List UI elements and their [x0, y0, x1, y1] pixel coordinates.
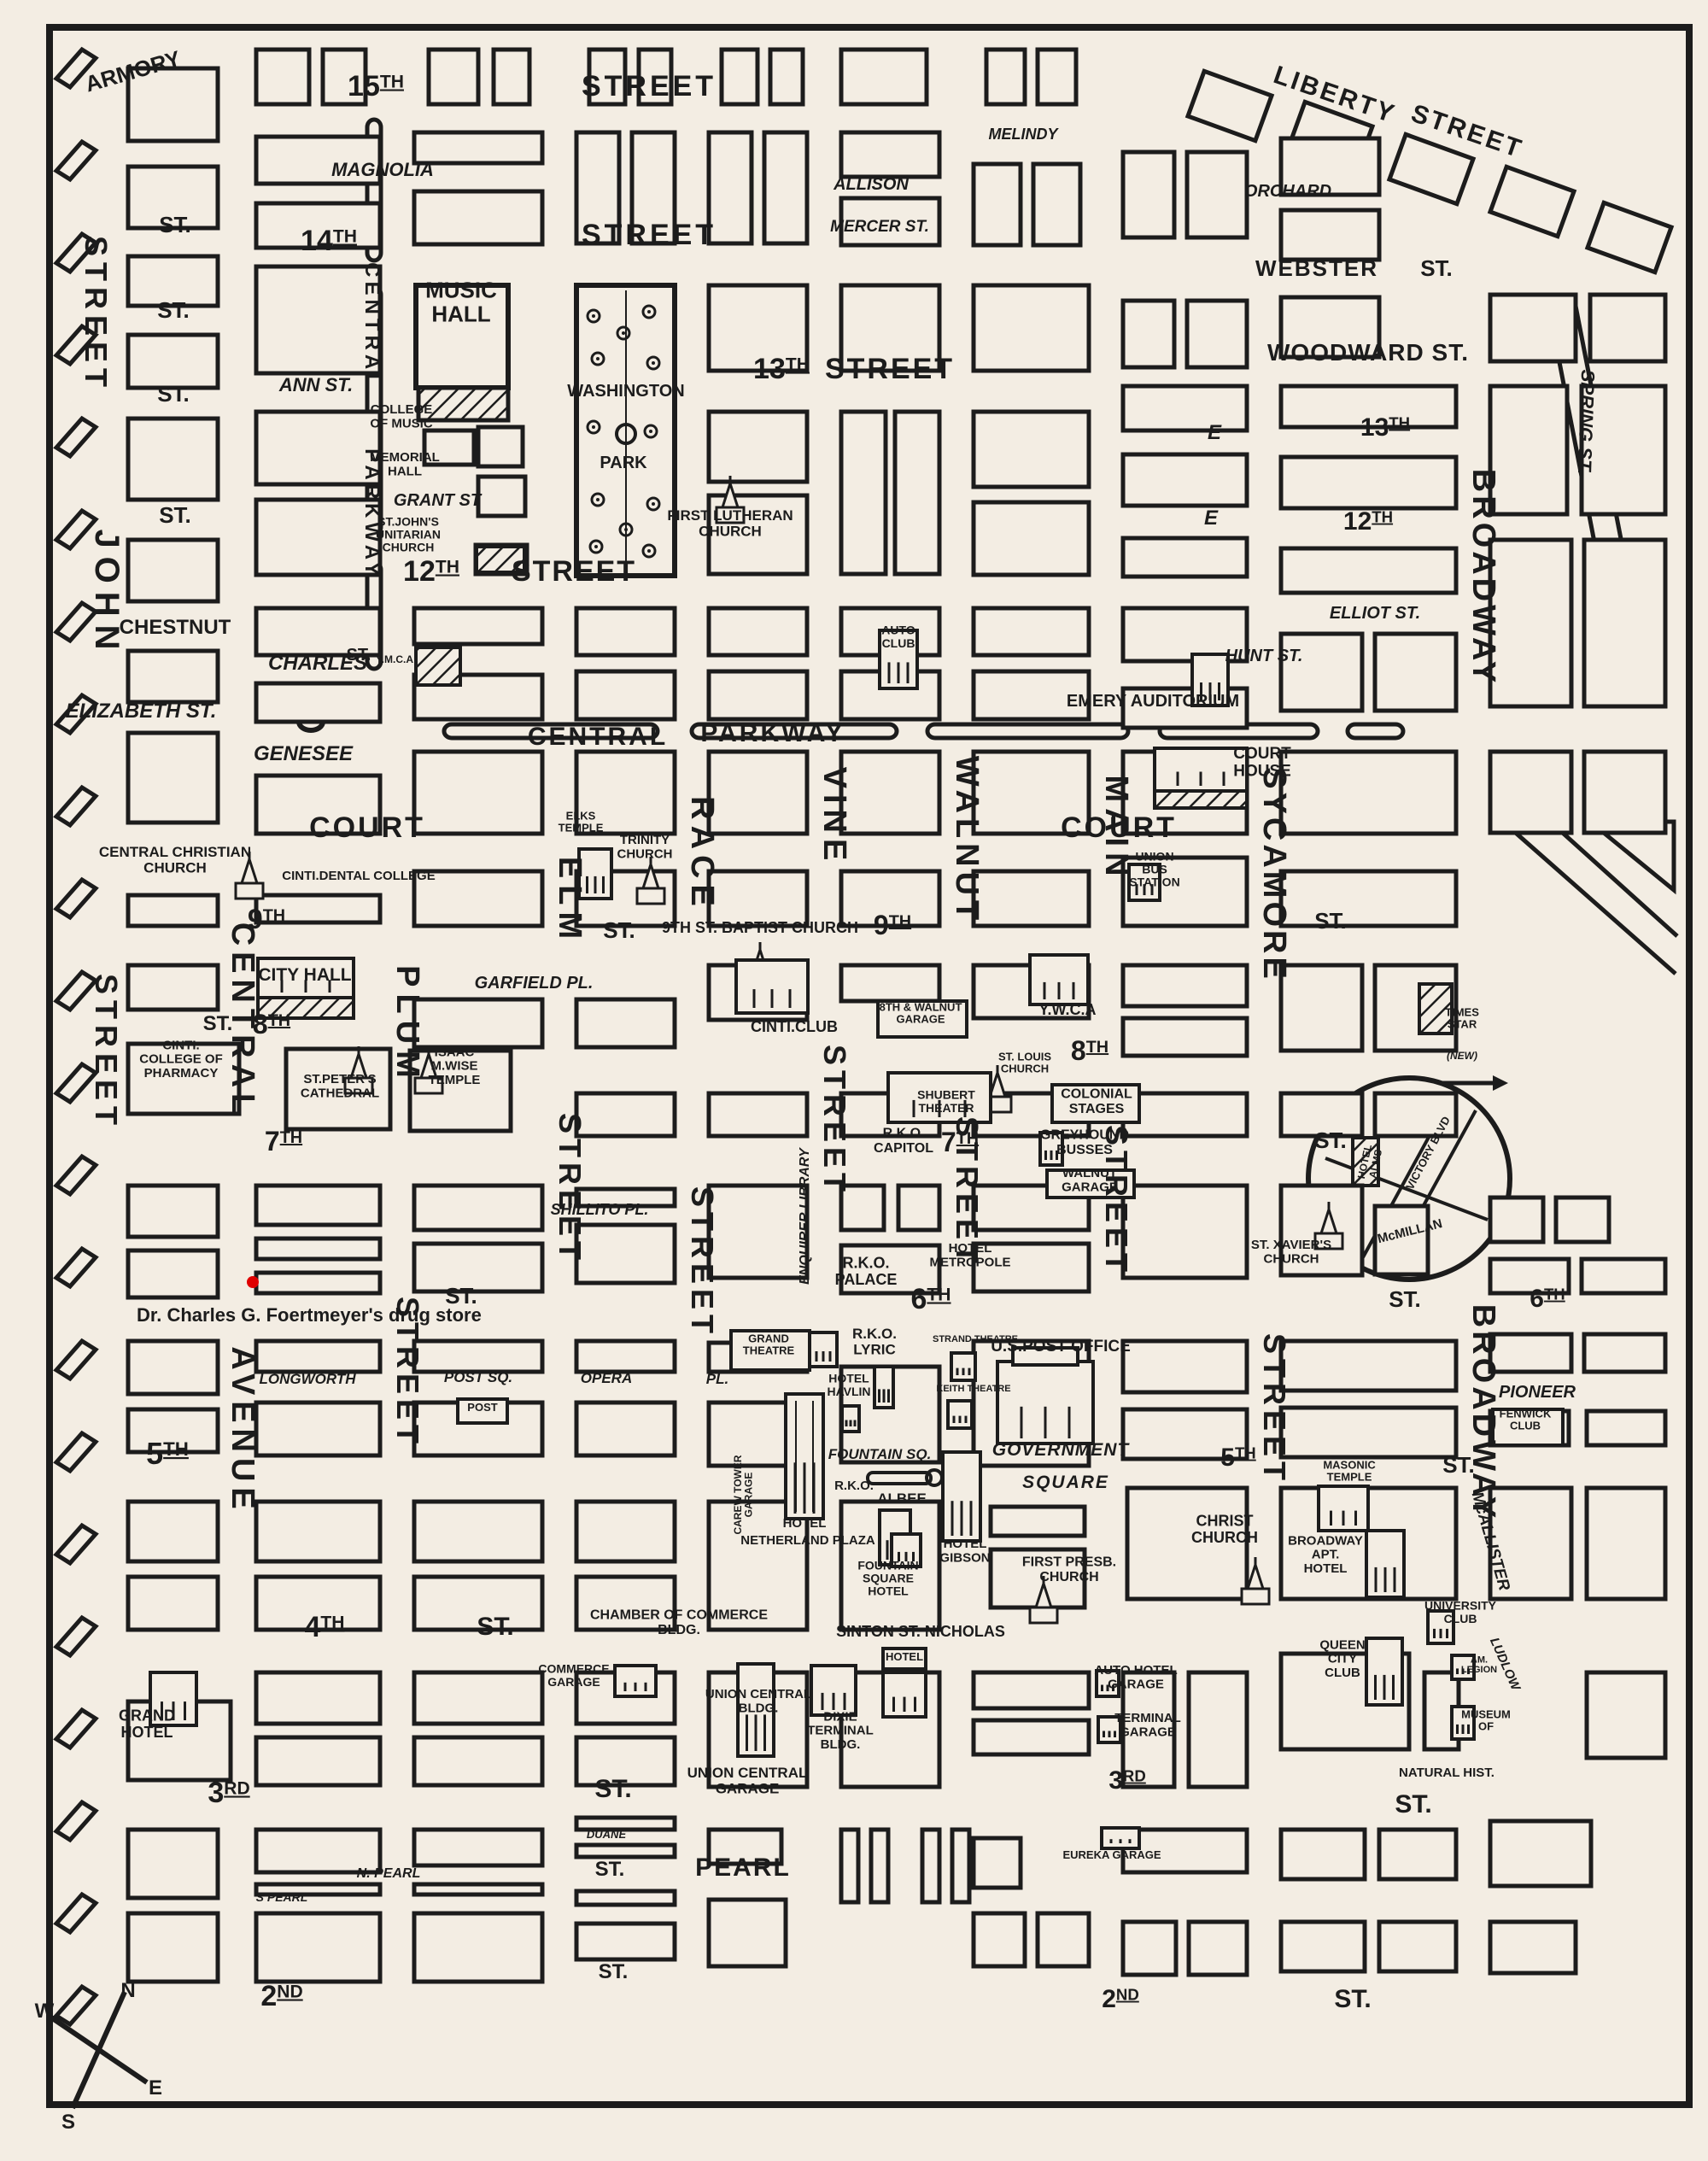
label-st-ymca: ST.: [347, 646, 371, 665]
label-st-west-1: ST.: [159, 212, 191, 237]
label-post-sq: POST SQ.: [444, 1369, 512, 1385]
label-st-johns-unitarian: ST.JOHN'SUNITARIANCHURCH: [376, 514, 441, 553]
label-broadway-n: BROADWAY: [1465, 469, 1501, 686]
label-orchard: ORCHARD: [1244, 182, 1331, 201]
label-st-webster: ST.: [1420, 255, 1453, 281]
cincinnati-downtown-map: ARMORYST.ST.ST.ST.CHESTNUTELIZABETH ST.G…: [0, 0, 1708, 2161]
label-rko-lyric: R.K.O.LYRIC: [852, 1326, 897, 1357]
label-st-6-e: ST.: [1389, 1286, 1421, 1312]
label-plum: PLUM: [389, 965, 425, 1085]
label-st-west-3: ST.: [157, 381, 190, 407]
label-magnolia: MAGNOLIA: [331, 159, 434, 180]
label-st-2-e: ST.: [1334, 1985, 1371, 2013]
label-grand-hotel: GRANDHOTEL: [119, 1707, 175, 1741]
label-keith-theatre: KEITH THEATRE: [936, 1384, 1010, 1394]
label-us-post-office: U.S.POST OFFICE: [991, 1338, 1131, 1356]
label-cinti-club: CINTI.CLUB: [751, 1018, 838, 1035]
label-post: POST: [467, 1401, 497, 1414]
label-st-7-e: ST.: [1314, 1127, 1347, 1153]
label-st-west-2: ST.: [157, 297, 190, 323]
drugstore-label: Dr. Charles G. Foertmeyer's drug store: [137, 1304, 482, 1326]
label-natural-hist: NATURAL HIST.: [1399, 1766, 1494, 1780]
label-ywca: Y.W.C.A: [1038, 1001, 1096, 1018]
label-street-sycamore: STREET: [1257, 1333, 1292, 1485]
label-st-5-e: ST.: [1442, 1452, 1475, 1478]
label-square: SQUARE: [1022, 1473, 1109, 1492]
label-opera: OPERA: [581, 1370, 632, 1386]
compass-s: S: [61, 2111, 75, 2134]
label-trinity-church: TRINITYCHURCH: [617, 833, 673, 861]
label-times-star: TIMESSTAR: [1445, 1005, 1479, 1030]
label-race: RACE: [684, 796, 720, 912]
label-ymca: Y.M.C.A: [376, 653, 413, 665]
label-college-of-music: COLLEGEOF MUSIC: [370, 402, 432, 430]
label-street-john-n: STREET: [79, 236, 114, 393]
label-masonic-temple: MASONICTEMPLE: [1323, 1458, 1376, 1483]
label-central-pkwy-v1: CENTRAL: [360, 262, 383, 390]
label-fountain-sq: FOUNTAIN SQ.: [828, 1446, 932, 1462]
label-terminal-garage: TERMINALGARAGE: [1114, 1711, 1181, 1739]
label-main: MAIN: [1098, 775, 1134, 881]
label-shubert: SHUBERTTHEATER: [917, 1088, 975, 1115]
label-e-12: E: [1204, 507, 1219, 530]
label-street-elm: STREET: [553, 1113, 588, 1265]
label-city-hall: CITY HALL: [258, 965, 351, 985]
label-enquirer-library: ENQUIRER LIBRARY: [798, 1147, 812, 1285]
label-auto-club: AUTOCLUB: [881, 624, 915, 650]
map-canvas: ARMORYST.ST.ST.ST.CHESTNUTELIZABETH ST.G…: [0, 0, 1708, 2161]
label-christ-church: CHRISTCHURCH: [1191, 1513, 1258, 1546]
label-pl: PL.: [706, 1371, 728, 1387]
label-grand-theatre: GRANDTHEATRE: [743, 1332, 795, 1356]
label-eureka-garage: EUREKA GARAGE: [1062, 1848, 1161, 1861]
label-e-13: E: [1208, 421, 1222, 444]
label-genesee: GENESEE: [254, 742, 354, 765]
label-street-race: STREET: [685, 1186, 720, 1338]
label-court-w: COURT: [309, 811, 425, 844]
label-music-hall: MUSICHALL: [425, 277, 497, 326]
label-garfield-pl: GARFIELD PL.: [475, 974, 594, 993]
label-isaac-wise: ISAACM.WISETEMPLE: [429, 1045, 481, 1086]
label-s-pearl: S PEARL: [256, 1890, 308, 1904]
label-hotel-gibson: HOTELGIBSON: [939, 1537, 990, 1565]
label-st-pearl-2: ST.: [599, 1960, 629, 1983]
label-street-13: STREET: [825, 353, 955, 385]
label-hunt-st: HUNT ST.: [1225, 647, 1303, 665]
label-street-15: STREET: [582, 70, 717, 102]
compass-n: N: [120, 1979, 135, 2002]
label-st-9-c: ST.: [603, 917, 635, 943]
label-grant-st: GRANT ST: [394, 491, 483, 510]
label-hotel-netherland-2: NETHERLAND PLAZA: [740, 1533, 875, 1548]
label-pearl: PEARL: [695, 1854, 791, 1882]
label-street-john-s: STREET: [89, 974, 124, 1131]
label-baptist-church: 9TH ST. BAPTIST CHURCH: [662, 919, 858, 936]
label-woodward: WOODWARD ST.: [1267, 339, 1469, 366]
label-rko-albee-1: R.K.O.: [834, 1479, 874, 1493]
label-st-west-4: ST.: [159, 502, 191, 528]
label-rko-palace: R.K.O.PALACE: [835, 1255, 898, 1288]
label-central-avenue-2: AVENUE: [225, 1346, 260, 1515]
label-chestnut: CHESTNUT: [120, 616, 231, 639]
label-vine: VINE: [816, 767, 852, 867]
label-street-14: STREET: [582, 219, 717, 251]
label-dental-college: CINTI.DENTAL COLLEGE: [282, 869, 435, 883]
label-melindy: MELINDY: [989, 126, 1060, 143]
label-rko-albee-2: ALBEE: [877, 1490, 927, 1507]
label-mercer: MERCER ST.: [830, 218, 929, 236]
label-central-pkwy-h2: PARKWAY: [700, 719, 845, 747]
label-st-duane: ST.: [595, 1858, 625, 1881]
label-washington: WASHINGTON: [567, 382, 684, 401]
compass-w: W: [35, 2000, 55, 2023]
label-webster: WEBSTER: [1255, 255, 1378, 281]
label-pioneer: PIONEER: [1499, 1383, 1576, 1402]
drugstore-dot: [247, 1276, 259, 1288]
label-duane: DUANE: [587, 1828, 627, 1841]
label-allison: ALLISON: [833, 175, 909, 194]
label-st-peters: ST.PETER'SCATHEDRAL: [301, 1072, 379, 1100]
label-elizabeth-st: ELIZABETH ST.: [66, 700, 217, 723]
label-colonial-stages: COLONIALSTAGES: [1061, 1087, 1132, 1116]
label-elm: ELM: [552, 857, 588, 946]
label-street-main: STREET: [1099, 1125, 1134, 1277]
label-john: JOHN: [88, 529, 126, 658]
label-government: GOVERNMENT: [992, 1440, 1131, 1460]
label-hotel-netherland-1: HOTEL: [783, 1516, 827, 1531]
label-hotel-havlin: HOTELHAVLIN: [827, 1372, 870, 1398]
label-central-pkwy-v2: PARKWAY: [360, 448, 383, 580]
compass-e: E: [149, 2076, 162, 2100]
label-sinton-st-nicholas: SINTON ST. NICHOLAS: [836, 1623, 1005, 1640]
label-n-pearl: N. PEARL: [357, 1866, 421, 1881]
label-street-12: STREET: [512, 555, 636, 588]
label-st-louis-church: ST. LOUISCHURCH: [998, 1050, 1051, 1075]
label-st-4-w: ST.: [477, 1613, 513, 1641]
label-st-3-e: ST.: [1395, 1790, 1431, 1818]
label-hotel-sinton: HOTEL: [886, 1650, 923, 1663]
label-longworth: LONGWORTH: [259, 1371, 356, 1387]
label-broadway-s: BROADWAY: [1465, 1304, 1501, 1521]
label-park: PARK: [600, 454, 647, 472]
label-walnut: WALNUT: [949, 756, 985, 926]
label-street-walnut: STREET: [950, 1116, 985, 1268]
label-central-pkwy-h1: CENTRAL: [528, 723, 668, 751]
label-commerce-garage: COMMERCEGARAGE: [538, 1662, 609, 1689]
label-spring-st: SPRING ST.: [1574, 369, 1599, 475]
label-elliot-st: ELLIOT ST.: [1330, 604, 1420, 623]
label-times-star-new: (NEW): [1447, 1050, 1477, 1062]
label-st-8th-w: ST.: [203, 1012, 233, 1035]
label-sycamore: SYCAMORE: [1256, 767, 1292, 982]
label-st-3-c: ST.: [594, 1775, 631, 1803]
label-street-vine: STREET: [817, 1045, 852, 1197]
label-st-9-e: ST.: [1314, 908, 1347, 934]
label-ann-st: ANN ST.: [278, 374, 353, 395]
label-emery-auditorium: EMERY AUDITORIUM: [1067, 692, 1239, 711]
